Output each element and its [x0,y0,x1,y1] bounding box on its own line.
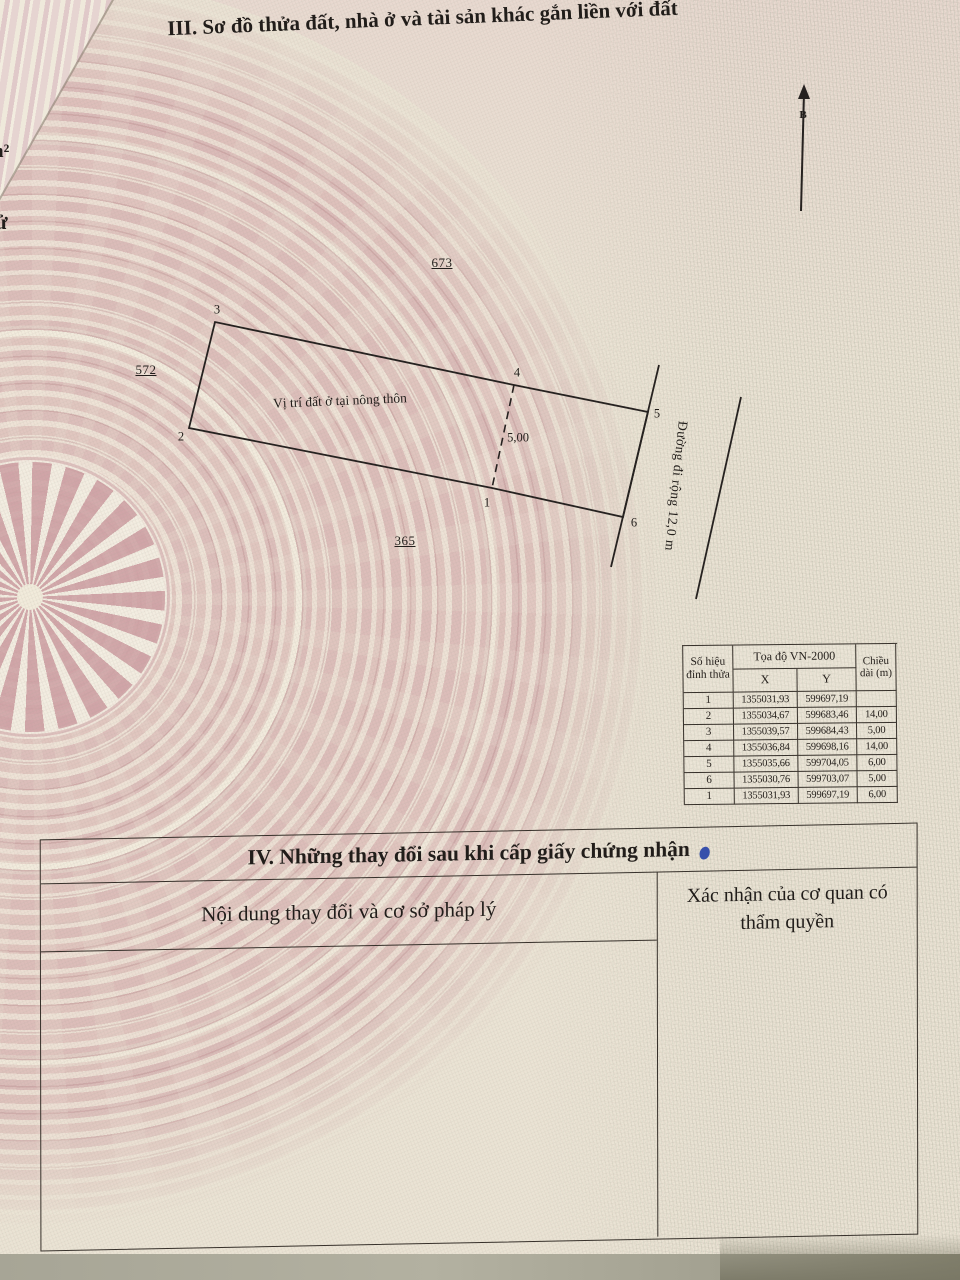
coord-cell-id: 3 [684,725,734,742]
coord-cell-y: 599697,19 [799,787,858,804]
coord-cell-len: 5,00 [857,723,897,739]
road-far-edge-line [696,397,741,599]
coord-cell-id: 1 [685,789,735,806]
vertex-label-3: 3 [214,303,220,318]
coord-header-vertex-id: Số hiệu đỉnh thửa [683,646,733,694]
coord-header-system: Tọa độ VN-2000 [733,644,856,669]
blue-ink-dot [698,845,712,860]
north-arrow-icon [798,84,810,211]
coord-cell-len: 14,00 [857,707,897,723]
coord-cell-id: 5 [684,757,734,774]
vertex-label-2: 2 [178,430,184,445]
coord-cell-y: 599684,43 [798,723,857,740]
coord-header-x: X [733,669,797,693]
coord-cell-y: 599698,16 [798,739,857,756]
vertex-label-6: 6 [631,516,637,531]
dimension-label: 5,00 [507,431,529,446]
certificate-page: n² ử III. Sơ đồ thửa đất, nhà ở và tài s… [0,0,960,1280]
coord-cell-len: 5,00 [857,771,897,787]
section4-left-body-empty [41,941,657,1249]
page-fold-line [0,0,114,202]
coord-cell-len: 6,00 [858,787,898,803]
section4-left-header: Nội dung thay đổi và cơ sở pháp lý [41,873,657,953]
coord-cell-id: 1 [684,693,734,710]
vertex-label-1: 1 [484,496,490,511]
section4-title: IV. Những thay đổi sau khi cấp giấy chứn… [247,837,689,870]
coord-cell-y: 599703,07 [799,771,858,788]
parcel-outline [189,322,648,517]
coord-cell-x: 1355030,76 [735,772,799,789]
section4-right-column: Xác nhận của cơ quan có thẩm quyền [658,868,918,1237]
coord-cell-id: 2 [684,709,734,726]
coord-header-length: Chiều dài (m) [856,644,896,691]
road-near-edge-line [611,365,659,567]
coord-cell-len: 6,00 [857,755,897,771]
coord-cell-y: 599704,05 [798,755,857,772]
coord-cell-y: 599683,46 [798,707,857,724]
coord-cell-x: 1355035,66 [734,756,798,773]
vertex-label-5: 5 [654,407,660,422]
coord-cell-id: 4 [684,741,734,758]
vertex-label-4: 4 [514,366,520,381]
coord-cell-len: 14,00 [857,739,897,755]
adjacent-parcel-number-572: 572 [136,362,157,378]
adjacent-parcel-number-365: 365 [395,533,416,549]
coordinate-table: Số hiệu đỉnh thửa Tọa độ VN-2000 Chiều d… [682,643,899,805]
coord-cell-y: 599697,19 [798,691,857,708]
coord-cell-id: 6 [685,773,735,790]
section4-left-column: Nội dung thay đổi và cơ sở pháp lý [41,873,659,1249]
coord-cell-x: 1355031,93 [735,788,799,805]
adjacent-parcel-number-673: 673 [432,255,453,271]
coord-header-y: Y [797,668,856,692]
north-label: B [799,109,806,121]
coord-cell-x: 1355039,57 [734,724,798,741]
coord-cell-len [857,691,897,707]
coord-cell-x: 1355031,93 [734,692,798,709]
section4-table: IV. Những thay đổi sau khi cấp giấy chứn… [40,823,919,1252]
coord-cell-x: 1355036,84 [734,740,798,757]
coord-cell-x: 1355034,67 [734,708,798,725]
